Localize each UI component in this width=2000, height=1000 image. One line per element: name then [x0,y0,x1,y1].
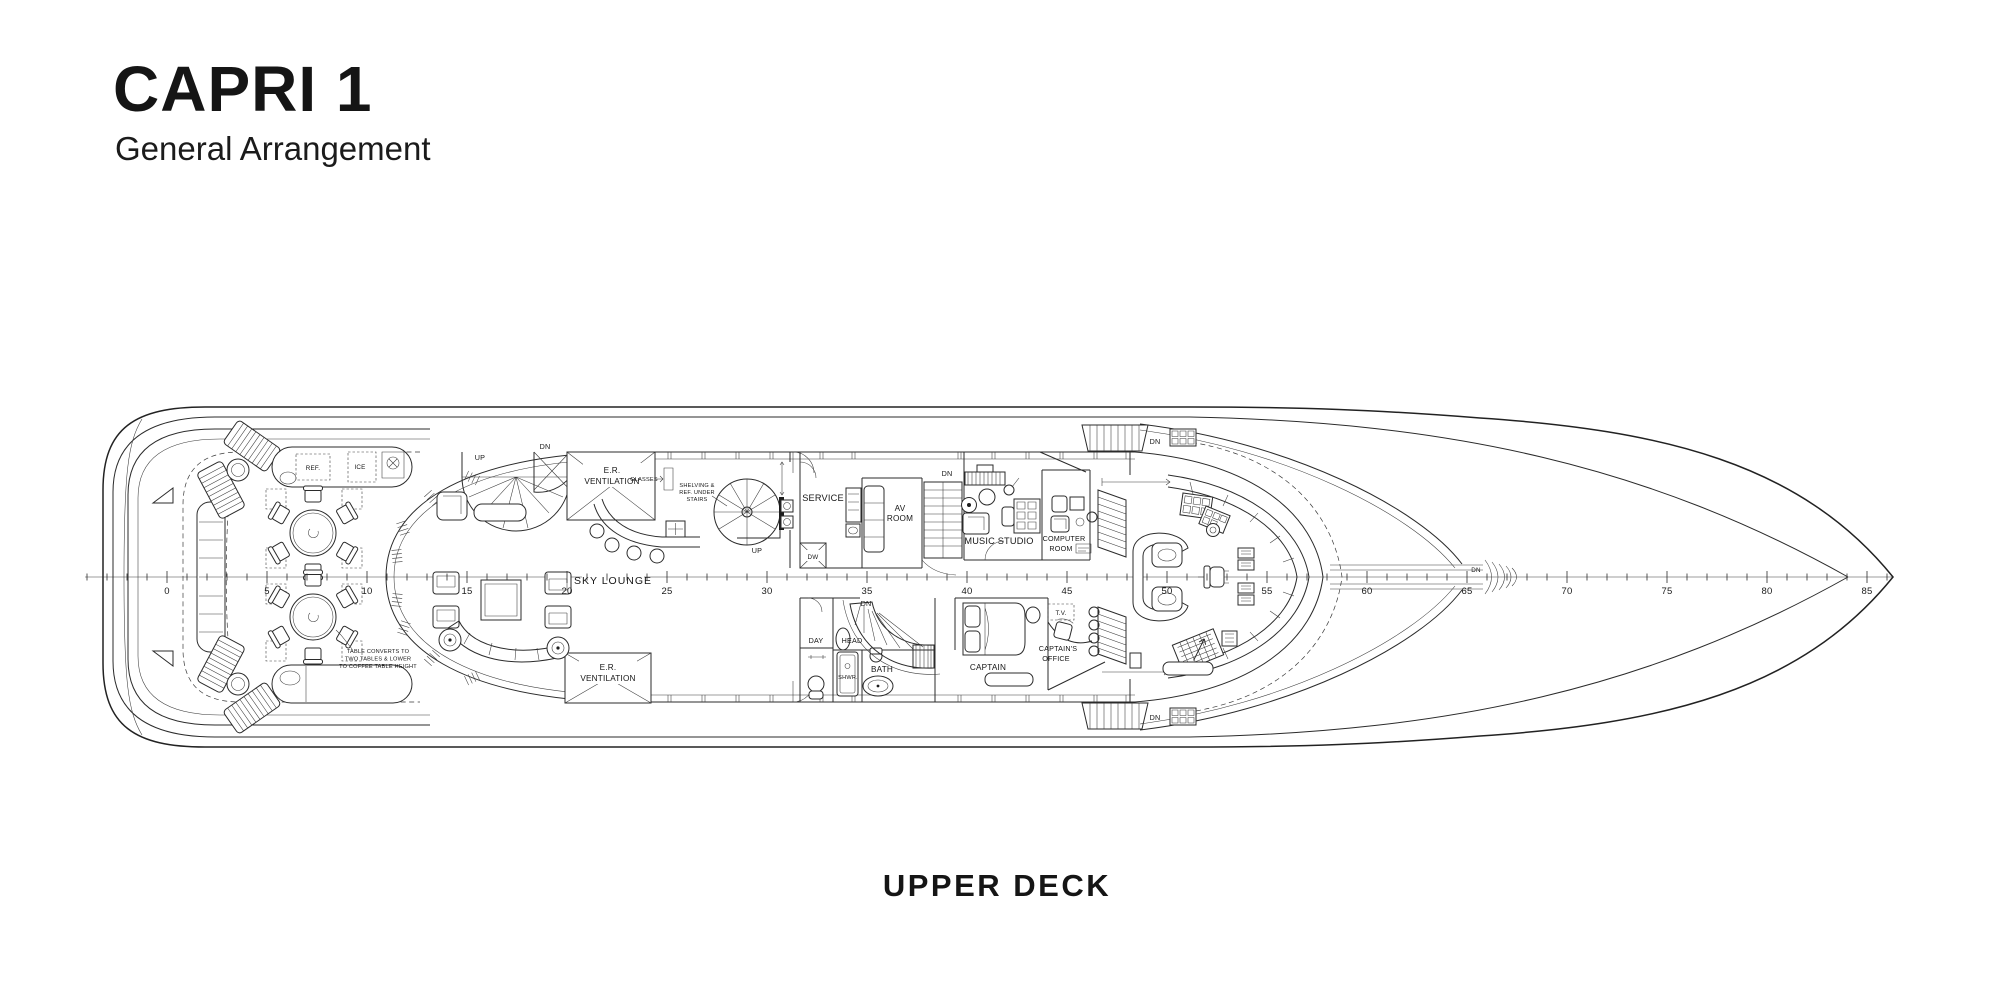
keyboard [965,472,1005,485]
svg-text:REF. UNDER: REF. UNDER [679,490,715,496]
svg-text:10: 10 [362,586,373,597]
svg-text:55: 55 [1262,586,1273,597]
svg-text:BATH: BATH [871,665,893,674]
mooring-chock [153,488,173,503]
aft-bar: REF. ICE [272,447,412,487]
dishwasher: DW [800,543,826,568]
dining-table-group [266,486,362,664]
service-label: SERVICE [802,493,844,503]
av-room: AV ROOM [862,478,922,568]
sky-lounge-label: SKY LOUNGE [574,575,652,587]
captain-bed [963,603,1025,655]
svg-text:CAPTAIN'S: CAPTAIN'S [1039,644,1078,653]
svg-text:TWO TABLES & LOWER: TWO TABLES & LOWER [345,657,412,663]
captain-label: CAPTAIN [970,663,1006,672]
svg-text:70: 70 [1562,586,1573,597]
er-vent-bottom: E.R. VENTILATION [565,653,651,703]
side-table [227,459,249,481]
deck-caption: UPPER DECK [883,868,1111,904]
svg-text:E.R.: E.R. [604,466,621,475]
glasses-label: GLASSES [630,477,658,483]
deck-plan-svg: REF. ICE [0,0,2000,1000]
day-head-bath: DAY HEAD SHWR. BATH [800,598,935,702]
ref-label: REF. [306,465,320,472]
svg-text:40: 40 [962,586,973,597]
svg-text:DN: DN [861,599,872,608]
ottoman [474,504,526,521]
svg-text:75: 75 [1662,586,1673,597]
svg-text:80: 80 [1762,586,1773,597]
svg-text:HEAD: HEAD [842,636,863,645]
side-table [227,673,249,695]
ice-label: ICE [354,464,365,471]
computer-room: COMPUTER ROOM [1042,470,1091,560]
svg-text:25: 25 [662,586,673,597]
svg-text:STAIRS: STAIRS [687,497,708,503]
svg-text:0: 0 [164,586,169,597]
aft-lounger [272,665,412,703]
svg-text:50: 50 [1162,586,1173,597]
svg-text:5: 5 [264,586,269,597]
music-studio-label: MUSIC STUDIO [964,536,1033,546]
svg-text:DN: DN [1150,713,1161,722]
helm-chair [1198,566,1229,588]
helm-console [1180,493,1230,537]
studio-chair [963,513,989,534]
svg-text:85: 85 [1862,586,1873,597]
svg-text:60: 60 [1362,586,1373,597]
svg-text:15: 15 [462,586,473,597]
svg-text:UP: UP [752,546,762,555]
svg-text:SHWR.: SHWR. [838,675,858,681]
svg-text:45: 45 [1062,586,1073,597]
svg-text:TABLE CONVERTS TO: TABLE CONVERTS TO [347,649,410,655]
shower-stall: SHWR. [837,652,858,696]
svg-text:T.V.: T.V. [1055,610,1066,617]
svg-text:OFFICE: OFFICE [1042,654,1070,663]
main-staircase: DN [922,452,964,575]
svg-text:DN: DN [540,442,551,451]
spiral-stair: UP [714,479,780,555]
svg-text:DW: DW [808,554,819,561]
svg-text:DAY: DAY [809,636,824,645]
svg-text:VENTILATION: VENTILATION [580,674,635,683]
svg-text:TO COFFEE TABLE HEIGHT: TO COFFEE TABLE HEIGHT [339,664,417,670]
svg-text:COMPUTER: COMPUTER [1043,534,1086,543]
svg-text:65: 65 [1462,586,1473,597]
svg-text:35: 35 [862,586,873,597]
svg-text:AV: AV [895,504,906,513]
captains-office: T.V. CAPTAIN'S OFFICE [1039,598,1105,690]
svg-text:ROOM: ROOM [1049,544,1072,553]
mooring-chock [153,651,173,666]
svg-text:30: 30 [762,586,773,597]
ga-drawing-page: CAPRI 1 General Arrangement [0,0,2000,1000]
instrument-stack [1238,548,1254,605]
svg-text:20: 20 [562,586,573,597]
svg-text:SHELVING &: SHELVING & [679,483,714,489]
lounge-seating [433,572,571,662]
dn-label: DN [1471,567,1481,574]
svg-text:E.R.: E.R. [600,663,617,672]
er-vent-top: E.R. VENTILATION [567,452,655,520]
svg-text:ROOM: ROOM [887,514,913,523]
studio-desk [1002,499,1040,533]
svg-text:UP: UP [475,453,485,462]
sky-lounge: UP DN E.R. VENTILATION E.R. VENTILATION [433,442,793,703]
captain-cabin: CAPTAIN [955,598,1048,686]
service-area: SERVICE DW AV ROOM [800,452,964,575]
svg-text:DN: DN [942,469,953,478]
svg-text:DN: DN [1150,437,1161,446]
